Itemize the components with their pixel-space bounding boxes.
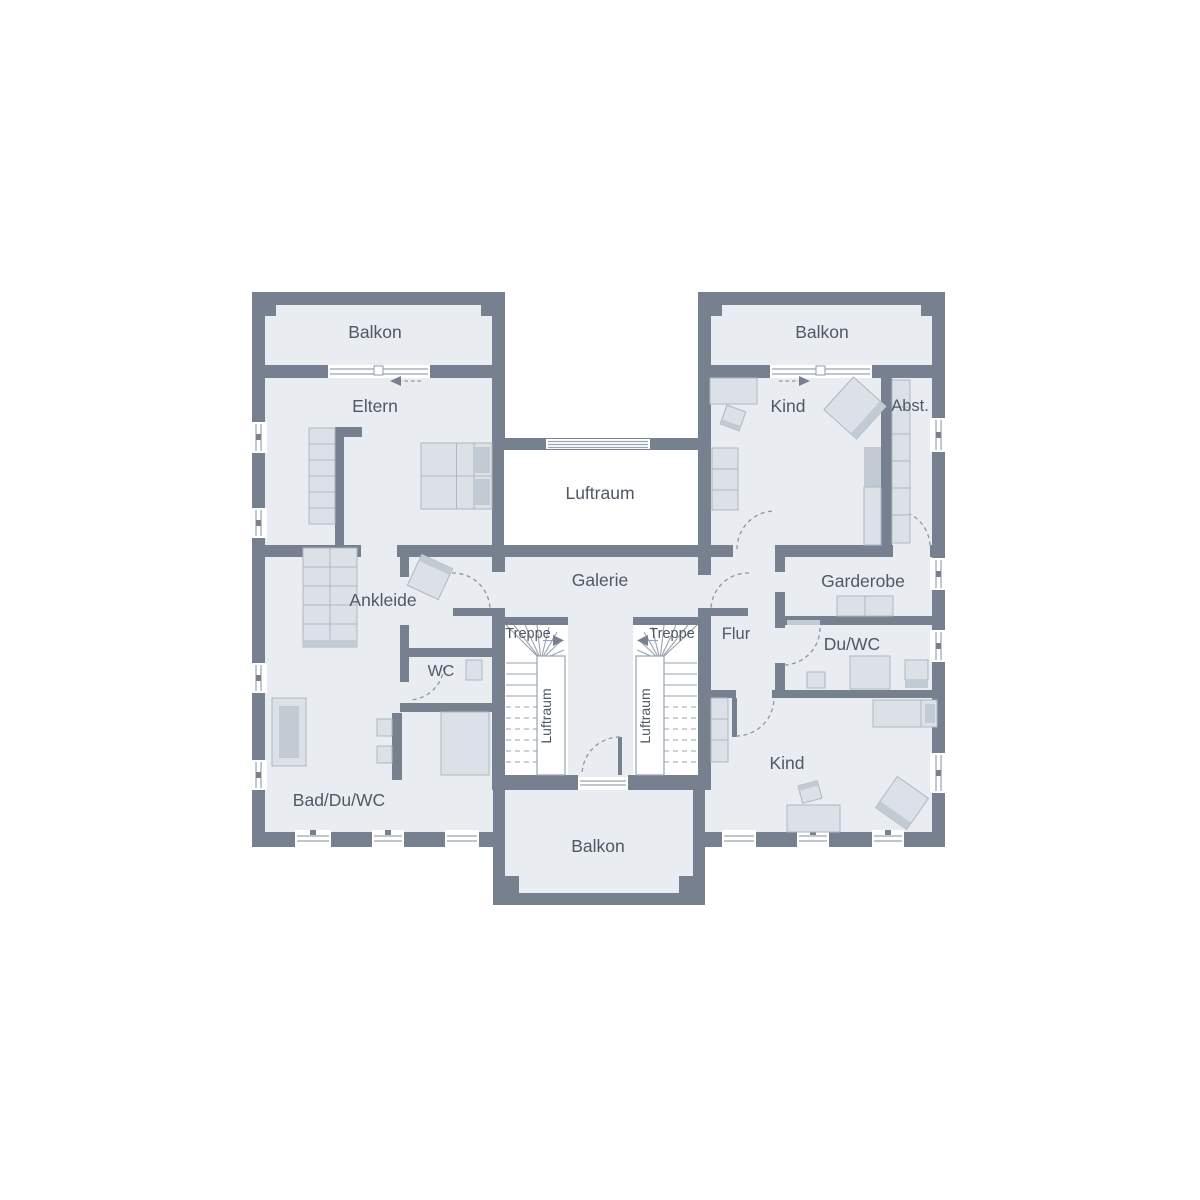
toilet — [807, 672, 825, 688]
room-label-luftraum-stair-left: Luftraum — [538, 688, 554, 743]
room-label-garderobe: Garderobe — [821, 571, 905, 591]
washbasin — [377, 746, 392, 763]
shower — [905, 660, 928, 688]
window — [445, 830, 479, 847]
room-label-ankleide: Ankleide — [349, 590, 416, 610]
room-label-flur: Flur — [722, 625, 751, 643]
window — [722, 830, 756, 847]
window — [930, 630, 947, 662]
window — [372, 830, 404, 847]
room-label-treppe-left: Treppe — [505, 626, 550, 642]
floor-plan: Balkon Balkon Eltern Kind Abst. Luftraum… — [0, 0, 1200, 1200]
balcony-door — [578, 777, 628, 790]
window — [250, 508, 267, 538]
window — [250, 760, 267, 790]
room-label-kind-top: Kind — [770, 396, 805, 416]
room-label-balkon-bottom: Balkon — [571, 836, 625, 856]
double-bed — [421, 443, 492, 509]
bed — [873, 700, 937, 727]
window — [250, 422, 267, 453]
balcony-door — [770, 365, 872, 378]
room-label-kind-bottom: Kind — [769, 753, 804, 773]
staircase-left — [505, 625, 568, 775]
washbasin — [377, 719, 392, 736]
room-label-balkon-left: Balkon — [348, 322, 402, 342]
dresser — [837, 596, 893, 616]
cabinet — [864, 487, 881, 545]
window — [930, 418, 947, 452]
wardrobe — [309, 428, 335, 524]
window — [872, 830, 904, 847]
room-label-du-wc: Du/WC — [824, 634, 880, 654]
shower — [441, 712, 489, 775]
window — [546, 439, 650, 449]
room-label-wc: WC — [428, 663, 455, 680]
window — [250, 663, 267, 693]
vanity — [850, 656, 890, 689]
desk — [710, 378, 757, 404]
shelf — [711, 698, 728, 762]
room-label-galerie: Galerie — [572, 570, 628, 590]
room-label-luftraum: Luftraum — [565, 483, 634, 503]
toilet — [466, 660, 482, 680]
bathtub — [272, 698, 306, 766]
room-label-eltern: Eltern — [352, 396, 398, 416]
room-label-abst: Abst. — [891, 397, 929, 415]
window — [797, 830, 829, 847]
shelf — [712, 448, 738, 510]
balcony-door — [328, 365, 430, 378]
desk — [787, 805, 840, 832]
window — [930, 558, 947, 590]
cabinet — [864, 447, 881, 487]
room-label-balkon-right: Balkon — [795, 322, 849, 342]
room-label-bad-du-wc: Bad/Du/WC — [293, 790, 385, 810]
room-label-treppe-right: Treppe — [649, 626, 694, 642]
window — [295, 830, 331, 847]
room-label-luftraum-stair-right: Luftraum — [637, 688, 653, 743]
window — [930, 753, 947, 793]
